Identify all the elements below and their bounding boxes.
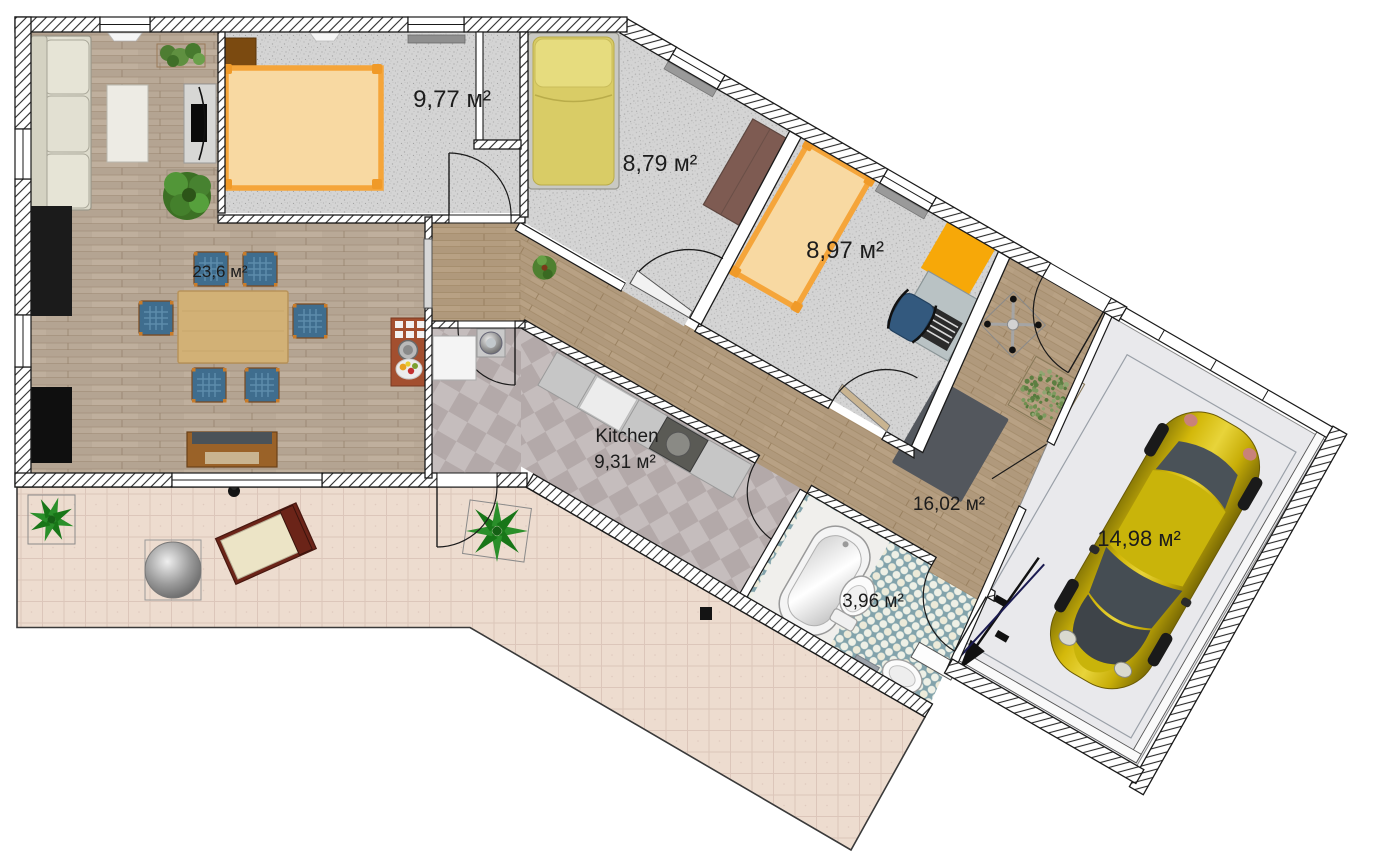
svg-text:8,79 м²: 8,79 м² [623,150,698,176]
svg-text:3,96 м²: 3,96 м² [842,591,904,612]
svg-text:9,77 м²: 9,77 м² [413,86,491,113]
svg-text:14,98 м²: 14,98 м² [1097,526,1181,551]
svg-text:9,31 м²: 9,31 м² [594,452,656,473]
svg-text:Kitchen: Kitchen [595,426,658,447]
svg-text:16,02 м²: 16,02 м² [913,494,985,515]
svg-text:8,97 м²: 8,97 м² [806,237,884,264]
svg-text:23,6 м²: 23,6 м² [192,262,247,281]
